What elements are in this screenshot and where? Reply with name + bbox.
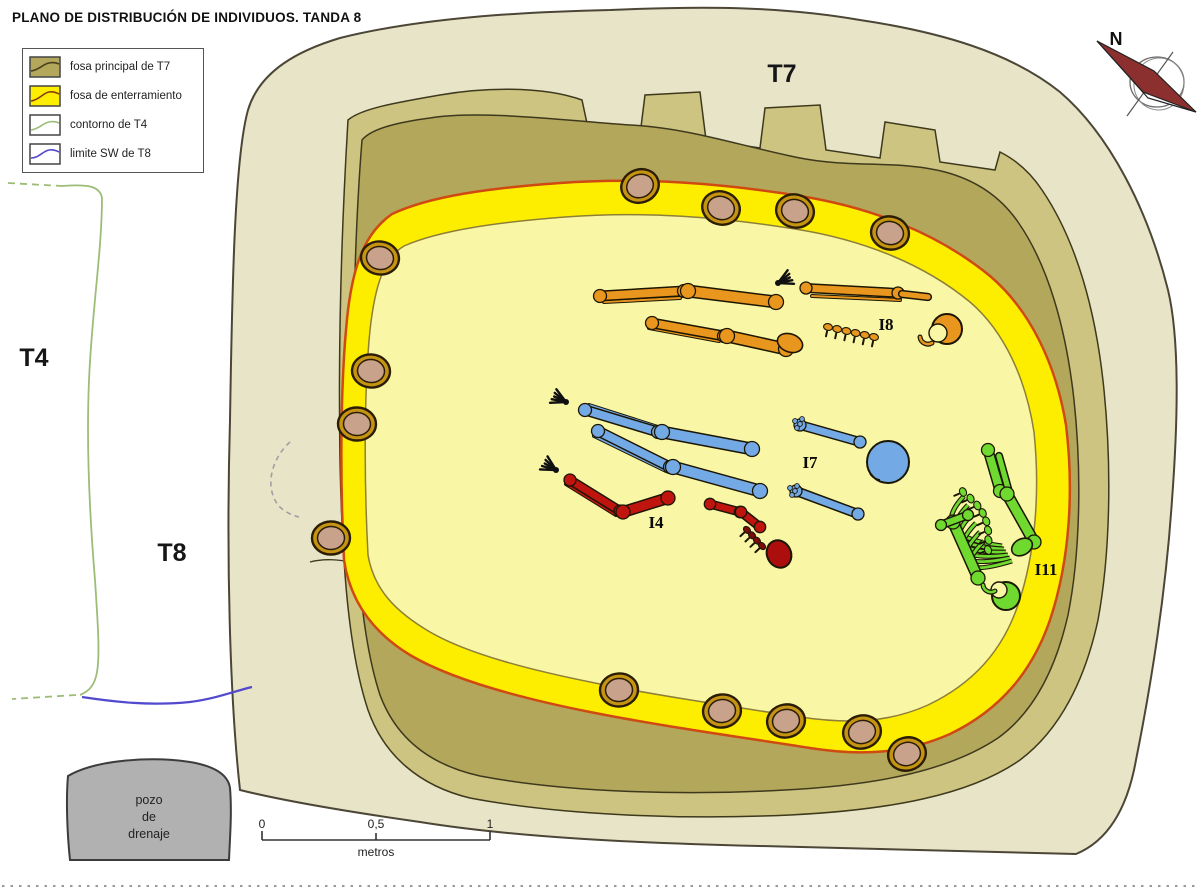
rim-stone (337, 407, 376, 441)
legend-swatch-limite-t8-icon (29, 143, 61, 165)
legend-item-fosa-principal: fosa principal de T7 (29, 56, 197, 78)
north-arrow: N (1097, 29, 1196, 116)
rim-stone (599, 672, 639, 708)
page-title: PLANO DE DISTRIBUCIÓN DE INDIVIDUOS. TAN… (12, 10, 361, 25)
legend-swatch-contorno-t4-icon (29, 114, 61, 136)
individual-label-i8: I8 (878, 315, 893, 334)
label-area-t8: T8 (157, 539, 186, 567)
drain-well: pozo de drenaje (67, 759, 231, 860)
north-label: N (1110, 29, 1123, 49)
limite-sw-t8-line (82, 687, 252, 704)
drain-label-line3: drenaje (128, 827, 170, 841)
individual-label-i11: I11 (1035, 560, 1058, 579)
scale-tick-1: 1 (487, 817, 494, 831)
legend-label: contorno de T4 (70, 119, 147, 131)
scale-tick-05: 0,5 (368, 817, 385, 831)
drain-label-line2: de (142, 810, 156, 824)
scale-unit-label: metros (358, 845, 395, 859)
legend-item-contorno-t4: contorno de T4 (29, 114, 197, 136)
label-area-t4: T4 (19, 344, 48, 372)
legend-box: fosa principal de T7 fosa de enterramien… (22, 48, 204, 173)
scale-tick-0: 0 (259, 817, 266, 831)
legend-label: fosa principal de T7 (70, 61, 170, 73)
drain-label-line1: pozo (135, 793, 162, 807)
legend-item-limite-t8: limite SW de T8 (29, 143, 197, 165)
legend-label: fosa de enterramiento (70, 90, 182, 102)
legend-swatch-fosa-enterramiento-icon (29, 85, 61, 107)
legend-item-fosa-enterramiento: fosa de enterramiento (29, 85, 197, 107)
rim-stone (312, 521, 351, 555)
individual-label-i4: I4 (648, 513, 664, 532)
site-plan-page: I8I7I4I11 T7 T4 T8 N pozo de drenaje (0, 0, 1200, 892)
legend-label: limite SW de T8 (70, 148, 151, 160)
contorno-t4-line (8, 183, 102, 699)
legend-swatch-fosa-principal-icon (29, 56, 61, 78)
individual-label-i7: I7 (802, 453, 818, 472)
label-area-t7: T7 (767, 60, 796, 88)
